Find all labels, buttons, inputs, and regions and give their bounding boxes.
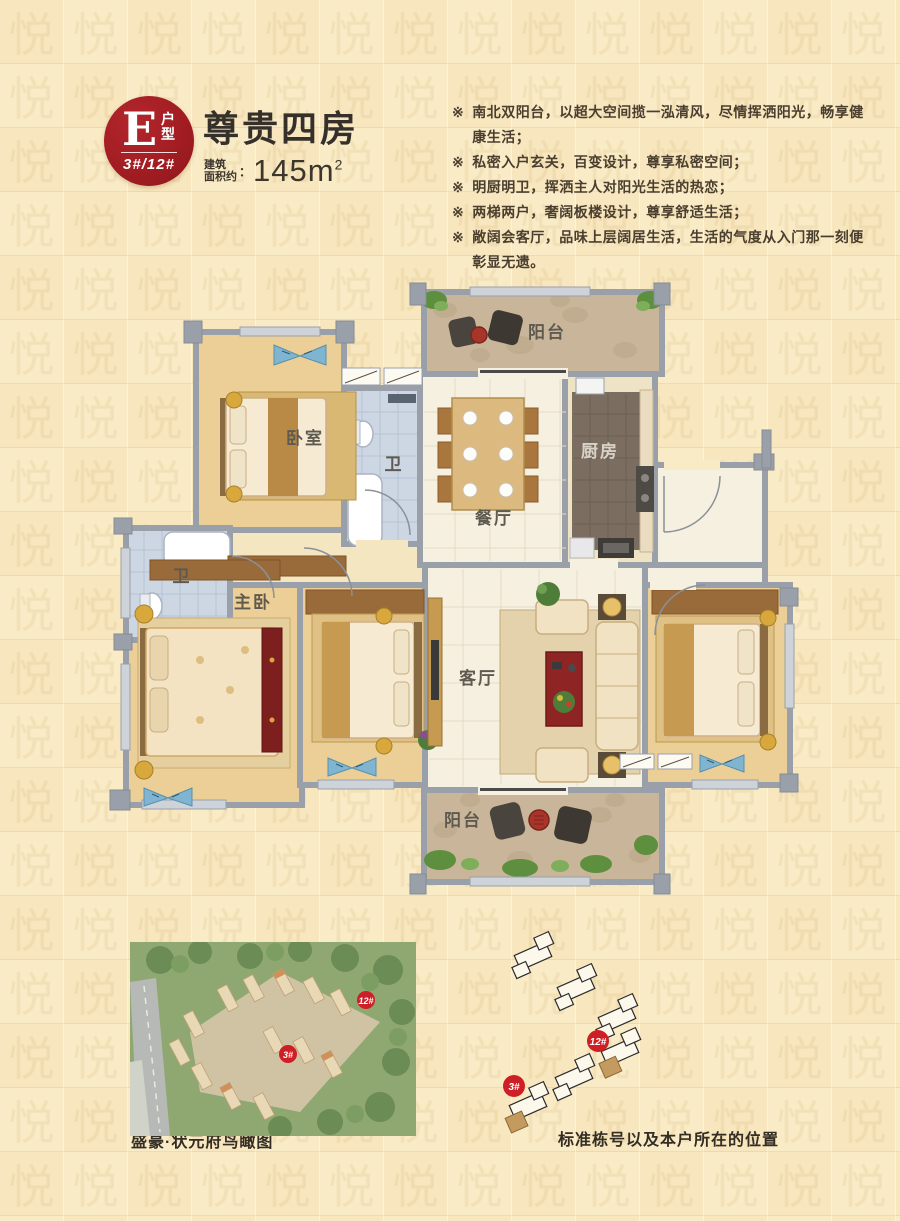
watermark-tile: 悦 [896, 128, 900, 192]
watermark-tile: 悦 [0, 320, 64, 384]
watermark-tile: 悦 [896, 0, 900, 64]
svg-text:3#: 3# [283, 1050, 293, 1060]
watermark-tile: 悦 [384, 0, 448, 64]
label-dining: 餐厅 [475, 508, 513, 528]
feature-item: ※敞阔会客厅，品味上层阔居生活，生活的气度从入门那一刻便彰显无遗。 [452, 225, 876, 275]
aerial-marker-3: 3# [279, 1045, 297, 1063]
watermark-tile: 悦 [832, 1216, 896, 1221]
watermark-tile: 悦 [832, 448, 896, 512]
watermark-tile: 悦 [896, 448, 900, 512]
watermark-tile: 悦 [896, 256, 900, 320]
site-plan: 12# 3# [480, 928, 790, 1143]
watermark-tile: 悦 [704, 0, 768, 64]
watermark-tile: 悦 [640, 1152, 704, 1216]
bedroom-middle-furniture [306, 590, 438, 754]
watermark-tile: 悦 [448, 1152, 512, 1216]
watermark-tile: 悦 [256, 192, 320, 256]
watermark-tile: 悦 [896, 768, 900, 832]
watermark-tile: 悦 [0, 960, 64, 1024]
label-bath-top: 卫 [385, 455, 404, 474]
feature-text: 敞阔会客厅，品味上层阔居生活，生活的气度从入门那一刻便彰显无遗。 [472, 225, 876, 275]
bedroom-right-furniture [652, 590, 778, 750]
watermark-tile: 悦 [64, 1088, 128, 1152]
watermark-tile: 悦 [832, 512, 896, 576]
watermark-tile: 悦 [832, 960, 896, 1024]
watermark-tile: 悦 [64, 1152, 128, 1216]
label-bedroom-top: 卧室 [286, 428, 324, 448]
area-value: 145m2 [253, 153, 343, 189]
watermark-tile: 悦 [832, 704, 896, 768]
watermark-tile: 悦 [0, 256, 64, 320]
watermark-tile: 悦 [832, 576, 896, 640]
watermark-tile: 悦 [832, 1024, 896, 1088]
svg-text:12#: 12# [590, 1037, 607, 1048]
floorplan-diagram: 阳台 卧室 卫 餐厅 厨房 卫 主卧 客厅 阳台 [90, 272, 805, 912]
label-kitchen: 厨房 [581, 441, 619, 461]
watermark-tile: 悦 [384, 64, 448, 128]
watermark-tile: 悦 [192, 1152, 256, 1216]
feature-text: 两梯两户，奢阔板楼设计，尊享舒适生活； [472, 200, 748, 225]
watermark-tile: 悦 [0, 192, 64, 256]
area-prefix-line1: 建筑 [204, 159, 237, 171]
watermark-tile: 悦 [576, 0, 640, 64]
watermark-tile: 悦 [128, 0, 192, 64]
watermark-tile: 悦 [320, 1216, 384, 1221]
watermark-tile: 悦 [0, 384, 64, 448]
watermark-tile: 悦 [64, 192, 128, 256]
watermark-tile: 悦 [896, 896, 900, 960]
watermark-tile: 悦 [0, 576, 64, 640]
watermark-tile: 悦 [832, 1152, 896, 1216]
watermark-tile: 悦 [576, 1152, 640, 1216]
badge-building-numbers: 3#/12# [104, 156, 194, 173]
watermark-tile: 悦 [192, 1216, 256, 1221]
watermark-tile: 悦 [0, 1024, 64, 1088]
watermark-tile: 悦 [896, 640, 900, 704]
watermark-tile: 悦 [0, 0, 64, 64]
watermark-tile: 悦 [832, 1088, 896, 1152]
siteplan-buildings [498, 932, 650, 1133]
watermark-tile: 悦 [896, 576, 900, 640]
label-balcony-bottom: 阳台 [444, 810, 482, 830]
watermark-tile: 悦 [384, 128, 448, 192]
built-area: 建筑 面积约 ： 145m2 [204, 153, 343, 189]
aerial-marker-12: 12# [357, 991, 375, 1009]
watermark-tile: 悦 [0, 768, 64, 832]
siteplan-marker-12: 12# [587, 1030, 609, 1052]
watermark-tile: 悦 [64, 960, 128, 1024]
watermark-tile: 悦 [704, 1152, 768, 1216]
aerial-view-image: 3# 12# [130, 942, 416, 1136]
watermark-tile: 悦 [512, 1152, 576, 1216]
label-balcony-top: 阳台 [528, 322, 566, 342]
watermark-tile: 悦 [832, 0, 896, 64]
label-living: 客厅 [458, 668, 497, 688]
area-colon: ： [239, 163, 251, 180]
watermark-tile: 悦 [448, 1216, 512, 1221]
bullet-icon: ※ [452, 150, 464, 175]
feature-item: ※两梯两户，奢阔板楼设计，尊享舒适生活； [452, 200, 876, 225]
watermark-tile: 悦 [128, 192, 192, 256]
watermark-tile: 悦 [896, 1152, 900, 1216]
watermark-tile: 悦 [320, 0, 384, 64]
watermark-tile: 悦 [704, 1216, 768, 1221]
feature-item: ※南北双阳台，以超大空间揽一泓清风，尽情挥洒阳光，畅享健康生活； [452, 100, 876, 150]
bullet-icon: ※ [452, 200, 464, 225]
area-prefix: 建筑 面积约 [204, 159, 237, 183]
watermark-tile: 悦 [832, 896, 896, 960]
watermark-tile: 悦 [832, 640, 896, 704]
kitchen-fittings [570, 378, 654, 558]
watermark-tile: 悦 [0, 896, 64, 960]
watermark-tile: 悦 [256, 1152, 320, 1216]
watermark-tile: 悦 [640, 1216, 704, 1221]
area-superscript: 2 [335, 157, 344, 173]
watermark-tile: 悦 [832, 832, 896, 896]
feature-list: ※南北双阳台，以超大空间揽一泓清风，尽情挥洒阳光，畅享健康生活； ※私密入户玄关… [452, 100, 876, 275]
watermark-tile: 悦 [0, 128, 64, 192]
watermark-tile: 悦 [0, 1088, 64, 1152]
feature-text: 私密入户玄关，百变设计，尊享私密空间； [472, 150, 748, 175]
watermark-tile: 悦 [768, 0, 832, 64]
watermark-tile: 悦 [0, 640, 64, 704]
feature-item: ※私密入户玄关，百变设计，尊享私密空间； [452, 150, 876, 175]
area-number: 145m [253, 153, 335, 188]
watermark-tile: 悦 [832, 384, 896, 448]
watermark-tile: 悦 [896, 384, 900, 448]
watermark-tile: 悦 [64, 1216, 128, 1221]
watermark-tile: 悦 [512, 0, 576, 64]
area-prefix-line2: 面积约 [204, 171, 237, 183]
watermark-tile: 悦 [0, 448, 64, 512]
watermark-tile: 悦 [0, 832, 64, 896]
watermark-tile: 悦 [896, 320, 900, 384]
feature-text: 明厨明卫，挥洒主人对阳光生活的热恋； [472, 175, 733, 200]
room-balcony-bottom [424, 790, 662, 882]
label-bath-left: 卫 [173, 567, 192, 586]
watermark-tile: 悦 [384, 192, 448, 256]
watermark-tile: 悦 [768, 1216, 832, 1221]
bullet-icon: ※ [452, 175, 464, 200]
watermark-tile: 悦 [0, 512, 64, 576]
watermark-tile: 悦 [64, 0, 128, 64]
watermark-tile: 悦 [576, 1216, 640, 1221]
watermark-tile: 悦 [896, 704, 900, 768]
watermark-tile: 悦 [192, 0, 256, 64]
room-entry [655, 465, 765, 565]
watermark-tile: 悦 [640, 0, 704, 64]
watermark-tile: 悦 [768, 1152, 832, 1216]
watermark-tile: 悦 [896, 1216, 900, 1221]
watermark-tile: 悦 [896, 832, 900, 896]
bullet-icon: ※ [452, 100, 464, 150]
label-master: 主卧 [234, 592, 272, 612]
watermark-tile: 悦 [832, 768, 896, 832]
watermark-tile: 悦 [0, 704, 64, 768]
watermark-tile: 悦 [320, 1152, 384, 1216]
watermark-tile: 悦 [320, 192, 384, 256]
watermark-tile: 悦 [64, 1024, 128, 1088]
unit-type-letter: E [122, 108, 157, 150]
bullet-icon: ※ [452, 225, 464, 275]
svg-text:3#: 3# [508, 1082, 520, 1093]
siteplan-marker-3: 3# [503, 1075, 525, 1097]
watermark-tile: 悦 [896, 512, 900, 576]
page-title: 尊贵四房 [203, 100, 359, 152]
watermark-tile: 悦 [192, 192, 256, 256]
floorplan-poster: 悦悦悦悦悦悦悦悦悦悦悦悦悦悦悦悦悦悦悦悦悦悦悦悦悦悦悦悦悦悦悦悦悦悦悦悦悦悦悦悦… [0, 0, 900, 1221]
watermark-tile: 悦 [896, 192, 900, 256]
watermark-tile: 悦 [256, 1216, 320, 1221]
watermark-tile: 悦 [832, 320, 896, 384]
watermark-tile: 悦 [384, 1152, 448, 1216]
watermark-tile: 悦 [896, 1088, 900, 1152]
watermark-tile: 悦 [0, 1152, 64, 1216]
watermark-tile: 悦 [0, 64, 64, 128]
watermark-tile: 悦 [384, 1216, 448, 1221]
watermark-tile: 悦 [0, 1216, 64, 1221]
dining-furniture [438, 398, 538, 510]
unit-type-badge: E 户型 3#/12# [104, 96, 194, 186]
watermark-tile: 悦 [896, 1024, 900, 1088]
watermark-tile: 悦 [448, 0, 512, 64]
unit-type-label: 户型 [160, 112, 176, 142]
watermark-tile: 悦 [256, 0, 320, 64]
watermark-tile: 悦 [896, 960, 900, 1024]
watermark-tile: 悦 [128, 1216, 192, 1221]
watermark-tile: 悦 [128, 1152, 192, 1216]
feature-item: ※明厨明卫，挥洒主人对阳光生活的热恋； [452, 175, 876, 200]
watermark-tile: 悦 [512, 1216, 576, 1221]
feature-text: 南北双阳台，以超大空间揽一泓清风，尽情挥洒阳光，畅享健康生活； [472, 100, 876, 150]
svg-text:12#: 12# [358, 996, 373, 1006]
watermark-tile: 悦 [896, 64, 900, 128]
